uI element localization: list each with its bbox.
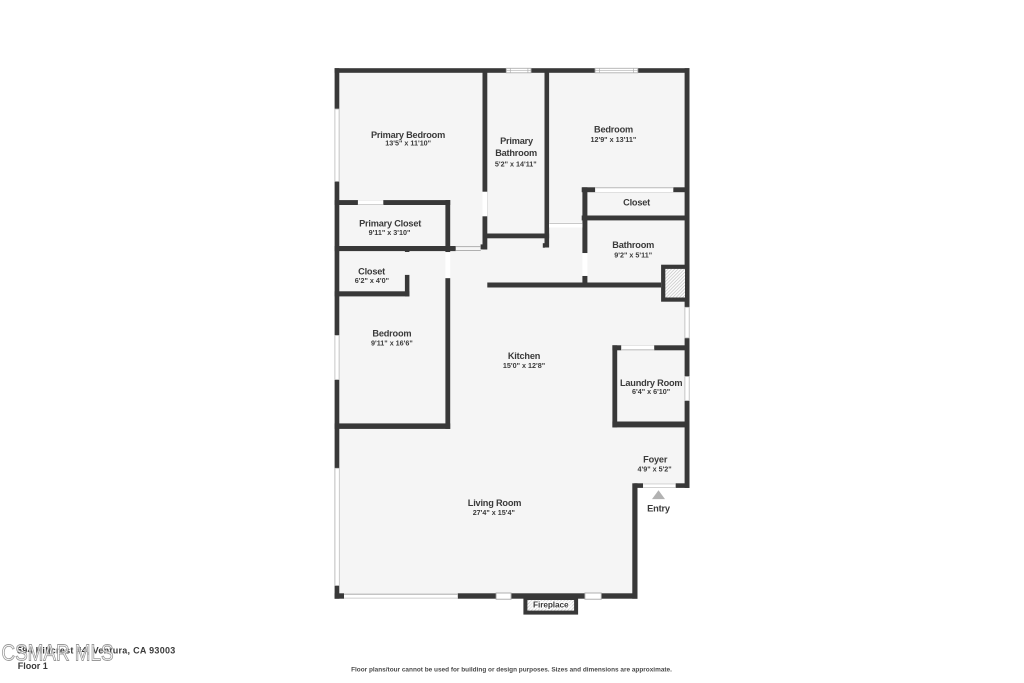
svg-text:Floor plans/tour cannot be use: Floor plans/tour cannot be used for buil… (351, 666, 672, 673)
svg-text:Foyer: Foyer (643, 454, 668, 464)
svg-text:15'0" x 12'8": 15'0" x 12'8" (503, 361, 545, 370)
svg-text:Bathroom: Bathroom (612, 240, 654, 250)
svg-text:12'9" x 13'11": 12'9" x 13'11" (590, 135, 636, 144)
svg-text:4'9" x 5'2": 4'9" x 5'2" (637, 464, 671, 473)
svg-text:Bathroom: Bathroom (495, 148, 537, 158)
svg-text:9'11" x 16'6": 9'11" x 16'6" (371, 338, 413, 347)
svg-text:9'2" x 5'11": 9'2" x 5'11" (614, 250, 652, 259)
svg-text:Closet: Closet (623, 198, 650, 208)
svg-text:5'2" x 14'11": 5'2" x 14'11" (495, 159, 537, 168)
svg-text:Floor 1: Floor 1 (18, 661, 48, 671)
svg-text:27'4" x 15'4": 27'4" x 15'4" (473, 508, 515, 517)
svg-text:6'4" x 6'10": 6'4" x 6'10" (632, 387, 670, 396)
svg-text:Bedroom: Bedroom (372, 329, 411, 339)
svg-text:Kitchen: Kitchen (508, 351, 541, 361)
svg-text:Bedroom: Bedroom (594, 125, 633, 135)
svg-text:13'5" x 11'10": 13'5" x 11'10" (385, 139, 431, 148)
svg-text:Primary Closet: Primary Closet (359, 218, 421, 228)
svg-text:Entry: Entry (647, 503, 671, 513)
svg-text:Primary: Primary (500, 136, 534, 146)
svg-text:9'11" x 3'10": 9'11" x 3'10" (369, 228, 411, 237)
svg-text:Living Room: Living Room (468, 498, 521, 508)
svg-text:6'2" x 4'0": 6'2" x 4'0" (355, 276, 389, 285)
svg-text:Fireplace: Fireplace (533, 600, 569, 610)
